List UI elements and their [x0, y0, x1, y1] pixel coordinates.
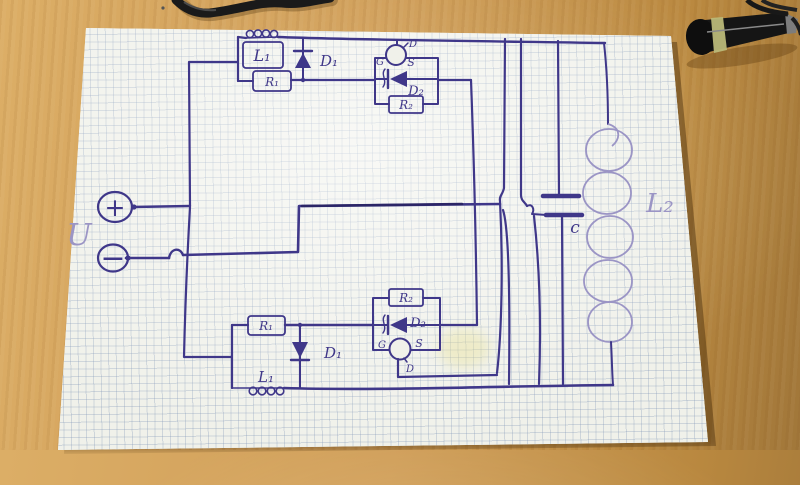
l2-coil-loops — [583, 124, 633, 342]
source-top-label: S — [407, 56, 415, 69]
inductor-l1-top-label: L₁ — [252, 46, 270, 65]
inductor-l1-top-coil — [246, 30, 278, 38]
gate-bottom-label: G — [378, 340, 386, 351]
cross-link-line — [471, 80, 477, 325]
drain-top-label: D — [408, 39, 417, 50]
desk-speck — [161, 6, 164, 9]
junction-dot — [131, 204, 136, 209]
wire-minus-hop — [169, 250, 183, 258]
mosfet-top-dlead — [403, 43, 408, 48]
vertical-line-b2 — [503, 210, 509, 384]
vertical-line-d — [534, 216, 540, 384]
vertical-line-b — [497, 39, 505, 373]
resistor-r1-bottom-label: R₁ — [258, 319, 273, 333]
mosfet-bottom-body — [390, 339, 411, 360]
capacitor-top-lead — [558, 41, 559, 195]
resistor-r2-top-label: R₂ — [398, 98, 413, 112]
diode-d2-bottom-label: D₂ — [409, 316, 426, 331]
minus-sign: − — [100, 241, 125, 276]
plus-sign: + — [105, 193, 126, 222]
schematic-photo: + − U L₁ R₁ D₁ — [0, 0, 800, 450]
diode-d1-bottom-triangle — [292, 342, 308, 358]
rail-bottom — [284, 385, 613, 389]
diode-d1-top-triangle — [295, 53, 311, 68]
interconnect-lines — [471, 39, 547, 384]
mosfet-assembly-bottom: R₂ D₂ G S D — [373, 289, 497, 377]
resistor-r2-bottom-label: R₂ — [398, 291, 413, 305]
mosfet-assembly-top: G S D D₂ R₂ — [375, 39, 471, 113]
inductor-l1-bottom-coil — [232, 387, 284, 395]
microphone-top-right — [684, 0, 800, 74]
bus-plus-down — [184, 207, 232, 388]
junction-dot — [301, 78, 305, 82]
rail-top — [278, 37, 605, 43]
diode-d1-top-label: D₁ — [319, 52, 338, 70]
cable-top-left — [161, 0, 332, 15]
capacitor-c: c — [543, 41, 582, 384]
junction-dot — [298, 323, 302, 327]
bus-plus-up — [189, 37, 238, 206]
branch-top: L₁ R₁ D₁ — [238, 30, 605, 91]
supply-wires — [125, 37, 500, 388]
inductor-l1-bottom-label: L₁ — [257, 368, 274, 386]
source-bottom-label: S — [415, 337, 423, 350]
gate-top-label: G — [376, 57, 384, 68]
l2-top-lead — [604, 43, 608, 124]
inductor-l2-label: L₂ — [645, 189, 674, 219]
wire-minus-run — [183, 204, 500, 255]
capacitor-label: c — [570, 218, 580, 238]
drain-bottom-label: D — [405, 364, 414, 375]
wire-hop-capacitor — [527, 205, 547, 215]
voltage-label: U — [66, 218, 93, 253]
capacitor-bottom-lead — [562, 217, 563, 384]
wire-plus — [132, 206, 190, 207]
diode-d1-bottom-label: D₁ — [323, 344, 342, 362]
diode-d2-top-triangle — [390, 71, 407, 87]
inductor-l2: L₂ — [583, 43, 674, 385]
l2-bottom-lead — [611, 342, 613, 385]
vertical-line-c — [521, 39, 527, 206]
diode-d2-bottom-triangle — [390, 317, 407, 333]
resistor-r1-top-label: R₁ — [264, 75, 279, 89]
voltage-source: + − U — [66, 192, 132, 276]
